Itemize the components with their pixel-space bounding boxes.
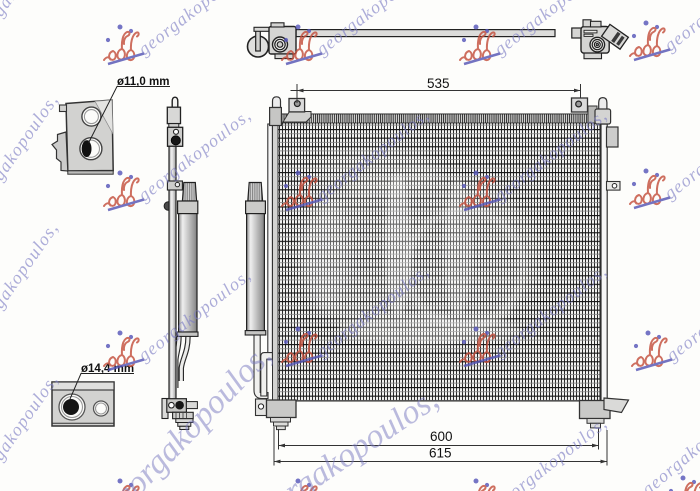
svg-text:615: 615 <box>429 446 452 461</box>
svg-text:600: 600 <box>430 429 453 444</box>
svg-text:535: 535 <box>427 76 450 91</box>
svg-text:ø11,0 mm: ø11,0 mm <box>117 76 169 88</box>
